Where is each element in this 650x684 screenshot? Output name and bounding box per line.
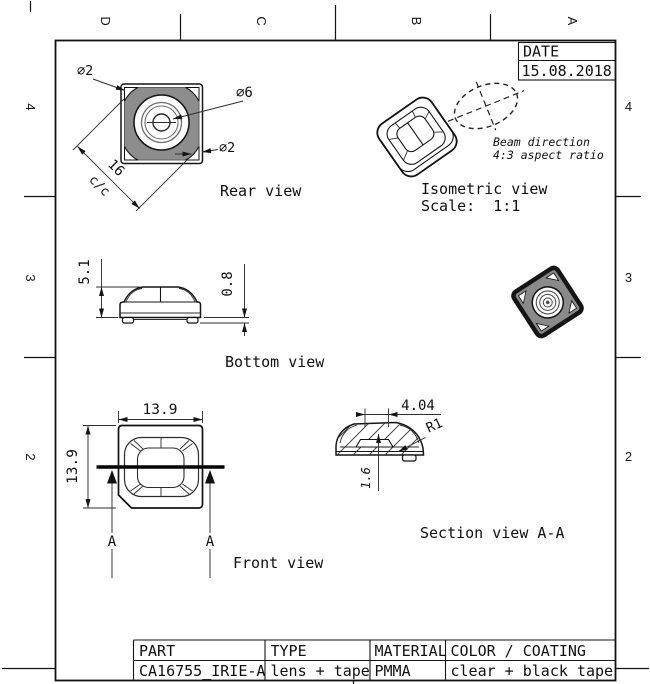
zone-row-right-4: 4	[625, 99, 632, 114]
dim-height-5-1: 5.1	[77, 259, 93, 284]
title-block: PART TYPE MATERIAL COLOR / COATING CA167…	[134, 640, 616, 681]
title-header-part: PART	[139, 642, 175, 660]
section-view-label: Section view A-A	[420, 524, 565, 542]
dim-radius-r1: R1	[424, 415, 445, 436]
engineering-drawing-sheet: D C B A 4 3 2 4 3 2 DATE 15.08.2018 ⌀2 ⌀…	[0, 0, 650, 684]
date-value: 15.08.2018	[522, 62, 612, 80]
zone-row-left-2: 2	[23, 453, 38, 460]
front-view: A A 13.9 13.9 Front view	[65, 402, 324, 578]
bottom-view: 5.1 0.8 Bottom view	[77, 259, 325, 371]
section-arrow-right	[205, 470, 215, 484]
bottom-view-label: Bottom view	[225, 353, 325, 371]
rear-view: ⌀2 ⌀6 ⌀2 16 c/c Rear view	[73, 63, 302, 211]
isometric-view-label: Isometric view	[421, 180, 548, 198]
rear-view-label: Rear view	[220, 182, 302, 200]
isometric-lens-part	[373, 93, 461, 180]
beam-note-line1: Beam direction	[493, 135, 590, 149]
sheet-frame: D C B A 4 3 2 4 3 2	[2, 1, 649, 684]
zone-row-right-3: 3	[625, 270, 632, 285]
isometric-scale-label: Scale: 1:1	[421, 197, 520, 215]
title-value-material: PMMA	[375, 662, 411, 680]
zone-column-a: A	[565, 17, 580, 26]
zone-column-b: B	[409, 17, 424, 26]
title-value-type: lens + tape	[271, 662, 370, 680]
title-value-color: clear + black tape	[451, 662, 614, 680]
title-value-part: CA16755_IRIE-A	[139, 662, 265, 680]
dim-depth-1-6: 1.6	[359, 467, 373, 489]
small-isometric-part	[512, 266, 584, 338]
front-view-label: Front view	[233, 554, 324, 572]
dim-width-13-9: 13.9	[143, 402, 178, 418]
zone-row-right-2: 2	[625, 449, 632, 464]
title-header-type: TYPE	[271, 642, 307, 660]
section-view: 4.04 R1 1.6 Section view A-A	[318, 398, 565, 542]
dim-height-13-9: 13.9	[65, 449, 81, 484]
foot	[123, 318, 134, 324]
dim-cc-note: c/c	[85, 172, 112, 199]
title-header-material: MATERIAL	[375, 642, 447, 660]
isometric-view: Beam direction 4:3 aspect ratio Isometri…	[373, 67, 604, 215]
title-header-color: COLOR / COATING	[451, 642, 586, 660]
beam-note-line2: 4:3 aspect ratio	[493, 148, 604, 162]
section-arrow-left	[107, 470, 117, 484]
section-marker-left: A	[108, 534, 117, 550]
foot	[187, 318, 198, 324]
zone-row-left-3: 3	[23, 274, 38, 281]
dim-flat-4-04: 4.04	[401, 398, 435, 414]
foot	[403, 455, 417, 461]
dim-tape-0-8: 0.8	[220, 271, 236, 296]
inner-lens-bump	[356, 440, 393, 448]
dim-dia6: ⌀6	[236, 85, 253, 101]
section-marker-right: A	[206, 534, 215, 550]
date-block: DATE 15.08.2018	[519, 43, 616, 81]
zone-row-left-4: 4	[23, 103, 38, 110]
zone-column-d: D	[98, 16, 113, 25]
date-label: DATE	[523, 43, 559, 61]
dim-dia2-top: ⌀2	[77, 63, 93, 79]
zone-column-c: C	[254, 16, 269, 25]
dim-dia2-bottom: ⌀2	[219, 140, 235, 156]
